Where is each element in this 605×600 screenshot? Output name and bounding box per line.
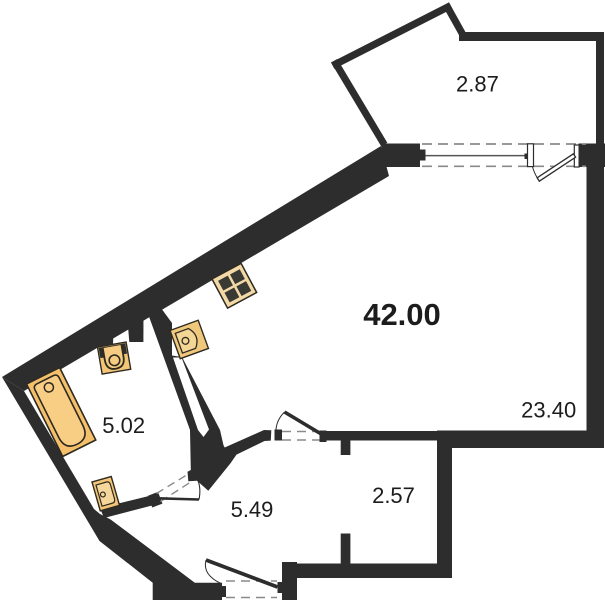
svg-text:42.00: 42.00 — [363, 297, 441, 332]
svg-text:2.57: 2.57 — [372, 483, 415, 508]
svg-text:5.02: 5.02 — [102, 413, 145, 438]
svg-text:2.87: 2.87 — [456, 72, 499, 97]
svg-text:5.49: 5.49 — [231, 497, 274, 522]
svg-text:23.40: 23.40 — [521, 398, 576, 423]
